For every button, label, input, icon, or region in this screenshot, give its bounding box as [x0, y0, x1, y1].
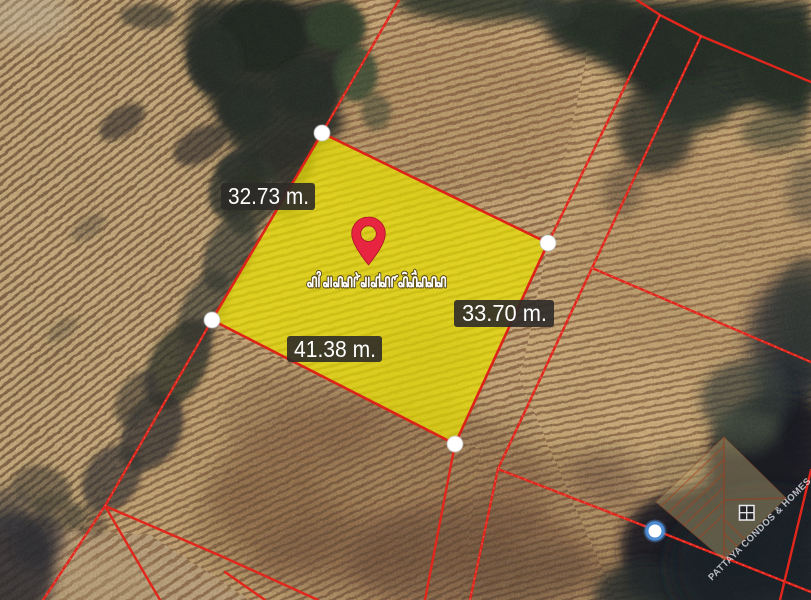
svg-text:33.70 m.: 33.70 m.: [462, 300, 547, 326]
svg-text:32.73 m.: 32.73 m.: [228, 183, 309, 209]
svg-text:41.38 m.: 41.38 m.: [294, 336, 376, 362]
